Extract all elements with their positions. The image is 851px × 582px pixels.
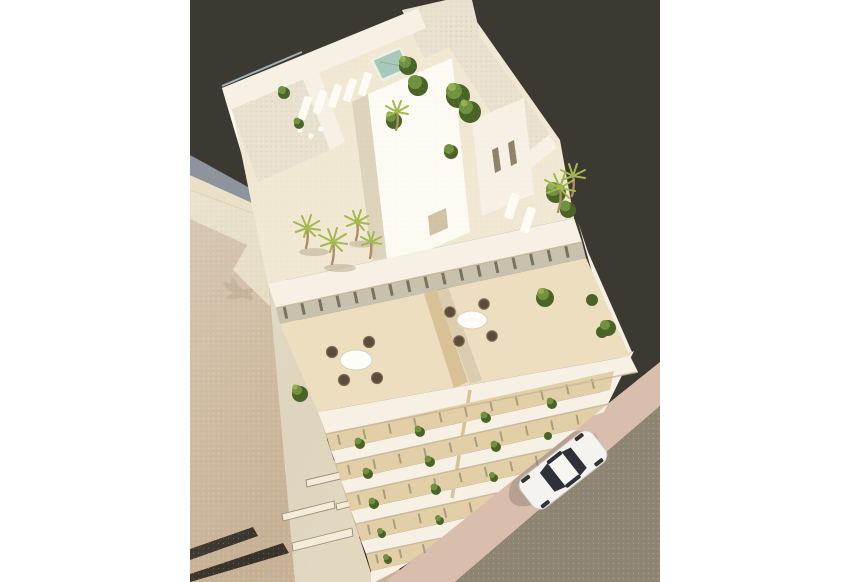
render-canvas: [0, 0, 851, 582]
scene-svg: [0, 0, 851, 582]
